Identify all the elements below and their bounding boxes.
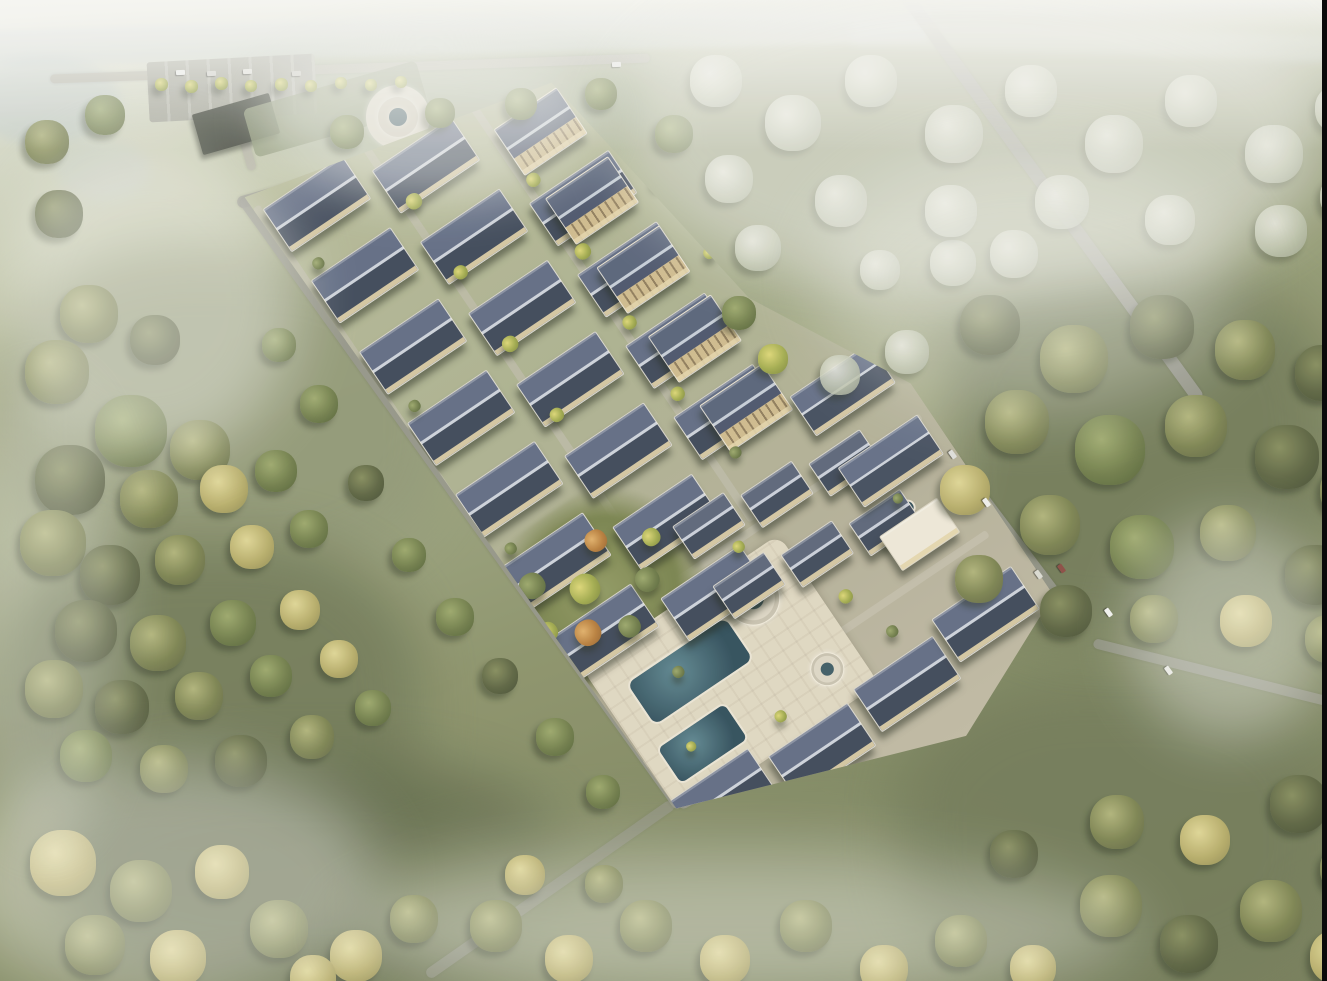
image-edge-bar [1322,0,1327,981]
fog-veil [0,0,1327,981]
aerial-site-plan-render [0,0,1327,981]
